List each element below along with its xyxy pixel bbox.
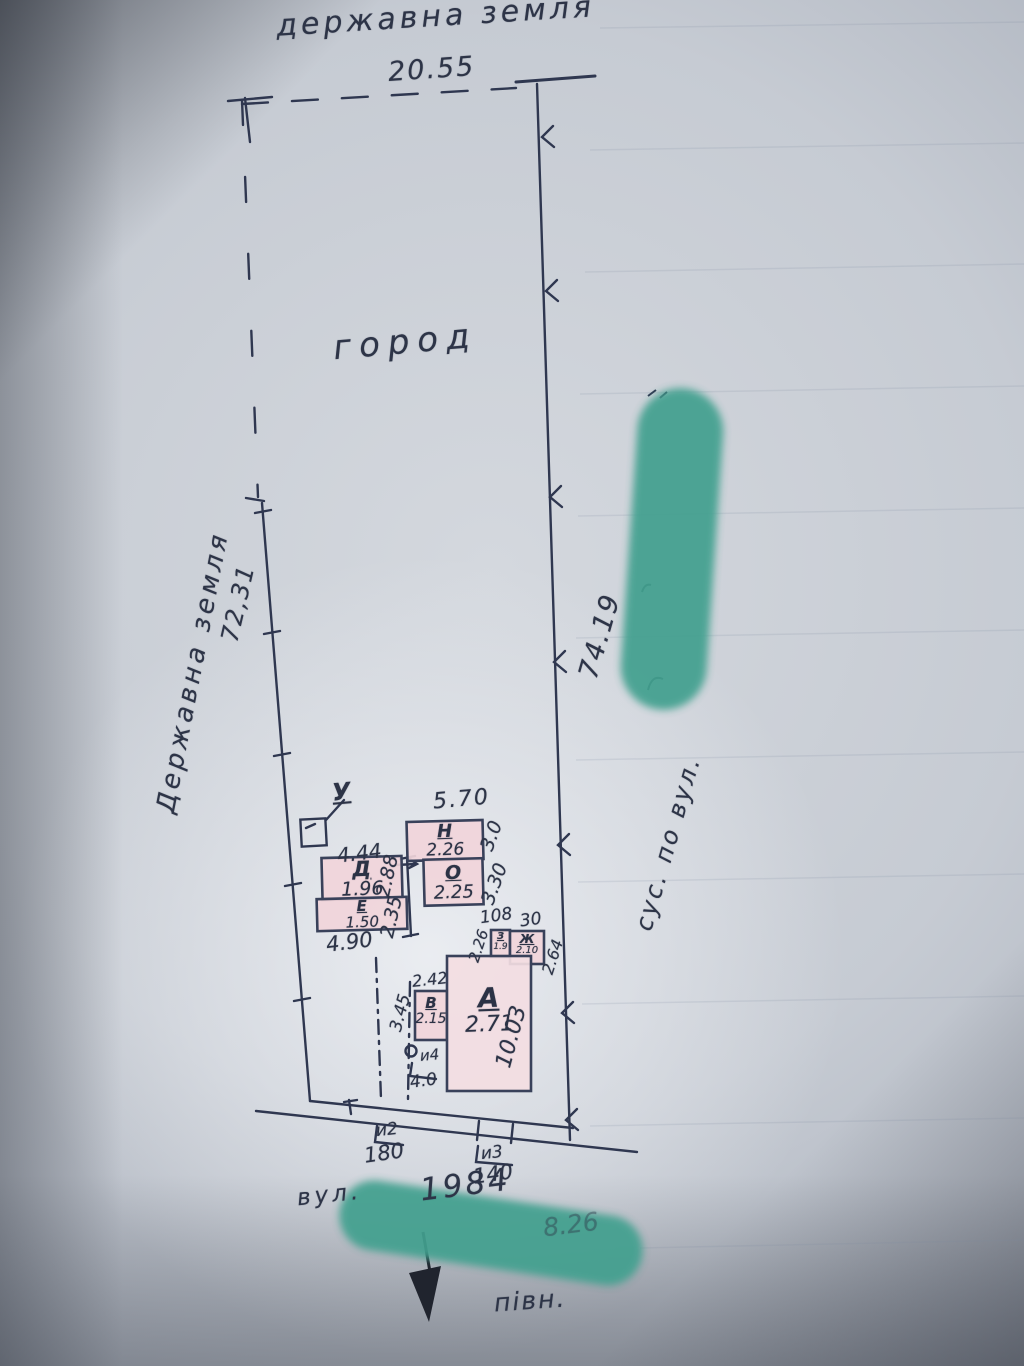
label-north: півн. (493, 1286, 567, 1316)
building-label-O: О 2.25 (423, 863, 483, 904)
dim-top-2055: 20.55 (387, 53, 476, 86)
redaction-right (618, 385, 726, 712)
building-letter: З (491, 932, 510, 943)
gate4-label: и4 (419, 1047, 440, 1064)
plan-photo: державна земля 20.55 Державна земля 72,3… (0, 0, 1024, 1366)
label-well: У (331, 779, 352, 805)
building-label-N: Н 2.26 (406, 822, 483, 861)
dim-826-faint: 8.26 (542, 1209, 600, 1241)
dim-108: 108 (479, 906, 514, 927)
building-value: 2.71 (447, 1012, 532, 1038)
building-value: 1.9 (491, 943, 510, 952)
building-letter: В (415, 996, 447, 1012)
building-value: 2.10 (510, 946, 544, 957)
gate2-value: 180 (363, 1140, 406, 1166)
gate-circle-icon (406, 1046, 417, 1057)
building-value: 1.50 (317, 913, 407, 932)
building-letter: Ж (510, 933, 544, 946)
dim-570: 5.70 (432, 787, 491, 814)
dim-30-low: 30 (519, 911, 543, 931)
building-label-A: А 2.71 (446, 984, 532, 1038)
boundary-bottom (256, 1100, 637, 1152)
building-label-E: Е 1.50 (316, 897, 407, 932)
fence-dashdot-left (376, 958, 381, 1099)
building-value: 2.15 (415, 1012, 447, 1027)
building-label-Z: З 1.9 (491, 932, 510, 952)
dim-242: 2.42 (411, 970, 448, 990)
boundary-right (537, 84, 578, 1140)
gate2-label: и2 (375, 1121, 399, 1140)
gate4-value: 4.0 (409, 1071, 438, 1092)
building-label-D: Д 1.96 (321, 857, 402, 902)
building-letter: А (446, 984, 531, 1015)
building-value: 2.25 (424, 883, 484, 904)
building-label-V: В 2.15 (415, 996, 447, 1026)
building-label-Zh: Ж 2.10 (510, 933, 544, 956)
well-icon (300, 800, 344, 847)
dim-490: 4.90 (325, 929, 374, 956)
plan-drawing (0, 0, 1024, 1366)
building-value: 2.26 (407, 841, 484, 861)
